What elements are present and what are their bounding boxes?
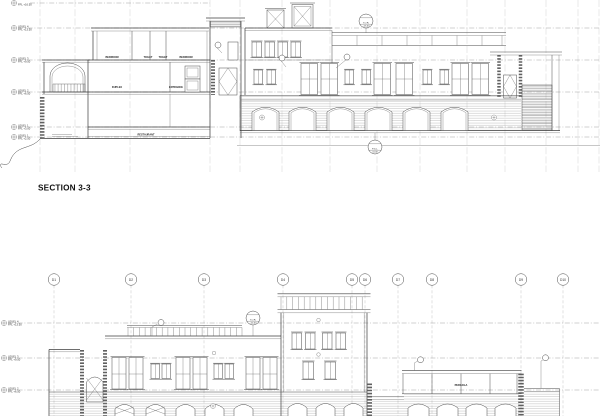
grid-bubble-label: D4	[281, 278, 285, 282]
window	[213, 363, 225, 379]
french-window	[394, 63, 415, 96]
grid-bubble-d7: D7	[392, 274, 404, 416]
arch-opening	[408, 404, 429, 416]
keynote-flag	[415, 357, 424, 371]
arch-opening	[466, 404, 487, 416]
french-window	[299, 63, 320, 96]
window	[321, 332, 334, 350]
siding-band	[524, 391, 560, 416]
section-title: SECTION 3-3	[38, 184, 91, 193]
french-window	[261, 356, 279, 389]
level-elevation: FFL +13.50	[8, 323, 22, 327]
arch-opening	[252, 107, 279, 130]
roof-vent-left	[265, 9, 286, 29]
window	[266, 69, 278, 85]
level-marker: LEVEL 4FFL +13.50	[11, 24, 32, 31]
french-window	[127, 356, 145, 389]
level-elevation: FFL +3.00	[18, 127, 31, 131]
drawing-sheet: FFL +16.50LEVEL 4FFL +13.50LEVEL 3FFL +9…	[0, 0, 606, 416]
french-window	[372, 63, 393, 96]
keynote-circle	[317, 353, 321, 357]
datum-ground-line2: ±0.00	[372, 152, 378, 154]
room-label-duplex: DUPLEX	[112, 86, 122, 89]
window	[290, 41, 303, 58]
keynote-circle	[317, 318, 321, 322]
keynote-flag	[215, 42, 222, 53]
arch-opening	[365, 107, 392, 130]
level-marker: LEVEL 4FFL +13.50	[1, 319, 22, 326]
rosette-icon	[492, 115, 497, 120]
french-window	[319, 63, 340, 96]
arch-opening	[495, 404, 516, 416]
window	[161, 363, 173, 379]
level-elevation: FFL +6.50	[18, 92, 31, 96]
french-window	[244, 356, 262, 389]
level-elevation: FFL +6.50	[8, 390, 21, 394]
grille	[53, 84, 85, 92]
level-elevation: FFL +9.50	[8, 358, 21, 362]
grid-bubble-label: D6	[363, 278, 367, 282]
tower-window	[228, 42, 238, 60]
datum-callout-ground: F.G.L. ±0.00	[368, 133, 382, 154]
window	[304, 332, 317, 350]
hatched-wall-block	[522, 85, 552, 130]
level-marker: LEVEL 1FFL +2.50	[11, 133, 30, 140]
window	[302, 361, 316, 380]
terrain-line	[1, 139, 41, 168]
grid-bubble-label: D8	[430, 278, 434, 282]
french-window	[470, 63, 491, 96]
window	[291, 332, 304, 350]
level-marker: LEVEL 2FFL +6.50	[1, 386, 20, 393]
keynote-flag	[279, 55, 286, 67]
room-label-toilet-left: TOILET	[144, 56, 153, 59]
window	[439, 69, 451, 85]
room-label-entrance: ENTRANCE	[169, 86, 183, 89]
level-elevation: FFL +2.50	[18, 137, 31, 141]
window	[224, 363, 236, 379]
rosette-icon	[260, 115, 265, 120]
window	[324, 361, 338, 380]
french-window	[191, 356, 209, 389]
arch-opening	[327, 107, 354, 130]
room-label-toilet-right: TOILET	[159, 56, 168, 59]
grid-bubble-label: D7	[396, 278, 400, 282]
level-marker: LEVEL 3FFL +9.50	[1, 354, 20, 361]
datum-elev-line2: +14.00	[250, 323, 258, 325]
level-marker: LEVEL 2FFL +6.50	[11, 88, 30, 95]
level-elevation: FFL +9.50	[18, 60, 31, 64]
grid-bubble-label: D5	[350, 278, 354, 282]
window	[264, 41, 277, 58]
datum-roof-line2: +15.00	[363, 26, 371, 28]
rosette-icon	[211, 404, 216, 409]
datum-callout-roof: T.O.R. +15.00	[359, 14, 373, 33]
french-window	[110, 356, 128, 389]
datum-ground-line1: F.G.L.	[372, 148, 378, 150]
level-marker: FFL +16.50	[11, 0, 32, 6]
arch-opening	[437, 404, 458, 416]
window	[422, 69, 434, 85]
window	[344, 69, 356, 85]
drawing-canvas: FFL +16.50LEVEL 4FFL +13.50LEVEL 3FFL +9…	[0, 0, 606, 416]
arch-opening	[403, 107, 430, 130]
tower-parapet-hatch	[211, 22, 241, 28]
keynote-flag	[336, 54, 350, 68]
datum-elev-line1: T.O.R.	[250, 319, 257, 321]
datum-callout-elevation: T.O.R. +14.00	[246, 311, 260, 336]
tower-door	[219, 68, 237, 95]
grid-bubble-label: D9	[519, 278, 523, 282]
room-label-restaurant: RESTAURANT	[137, 134, 155, 137]
window	[150, 363, 162, 379]
datum-roof-line1: T.O.R.	[363, 22, 370, 24]
arch-opening	[441, 107, 468, 130]
level-marker: LEVEL 3FFL +9.50	[11, 56, 30, 63]
siding-band	[372, 400, 404, 416]
elevation-building: PERGOLA	[49, 294, 560, 416]
grid-bubble-label: D2	[129, 278, 133, 282]
arch-opening	[289, 107, 316, 130]
room-label-bedroom-right: BEDROOM	[179, 56, 192, 59]
window	[253, 69, 265, 85]
window	[251, 41, 264, 58]
level-marker: LEVEL 1FFL +3.00	[11, 123, 30, 130]
grid-bubble-label: D1	[52, 278, 56, 282]
keynote-flag	[541, 355, 549, 389]
level-elevation: FFL +13.50	[18, 28, 32, 32]
keynote-circle	[212, 351, 216, 355]
french-window	[174, 356, 192, 389]
window	[361, 69, 373, 85]
level-elevation: FFL +16.50	[18, 3, 32, 7]
bulkhead-door	[504, 75, 517, 98]
window	[335, 332, 348, 350]
grid-bubble-label: D10	[560, 278, 566, 282]
roof-vent-right	[290, 3, 315, 28]
french-window	[450, 63, 471, 96]
grid-bubble-label: D3	[202, 278, 206, 282]
section-building	[1, 3, 601, 168]
room-label-bedroom-left: BEDROOM	[105, 56, 118, 59]
